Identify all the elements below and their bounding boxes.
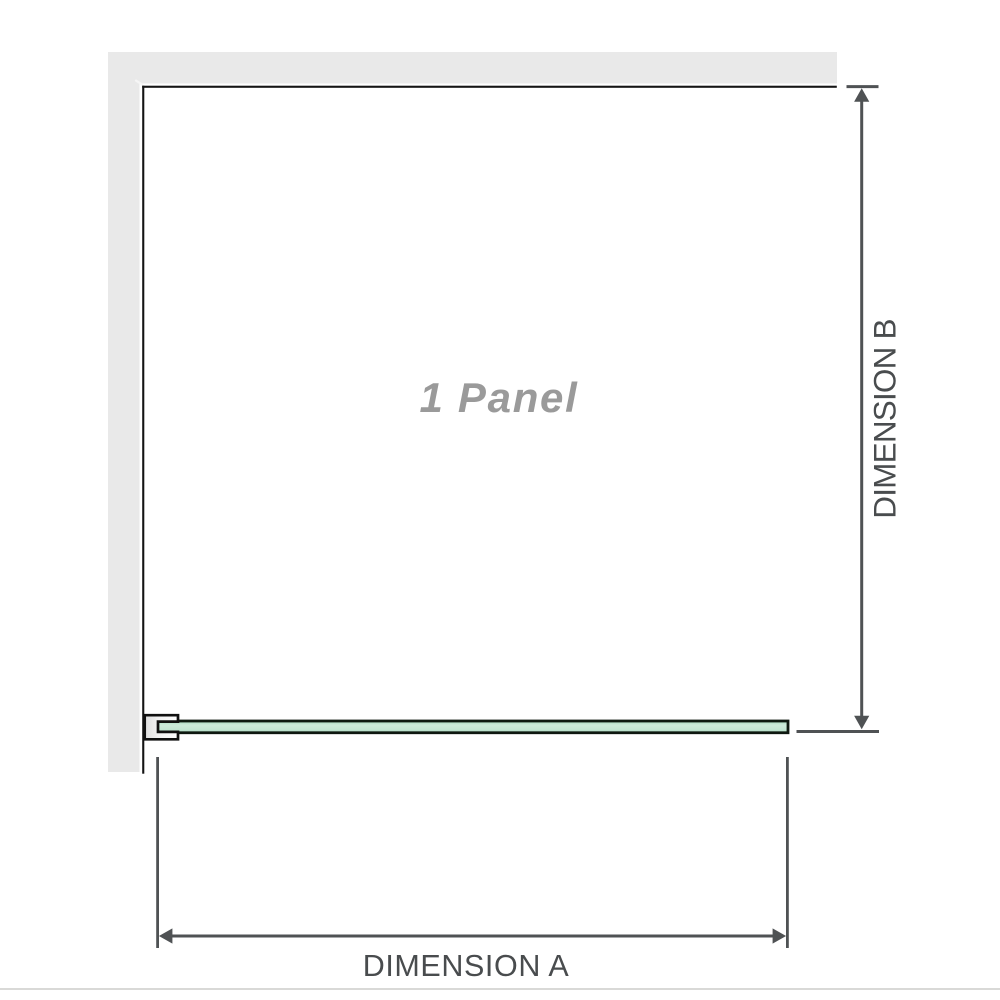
svg-text:DIMENSION A: DIMENSION A	[363, 949, 570, 983]
svg-text:1 Panel: 1 Panel	[420, 374, 579, 421]
svg-text:DIMENSION B: DIMENSION B	[867, 319, 903, 518]
